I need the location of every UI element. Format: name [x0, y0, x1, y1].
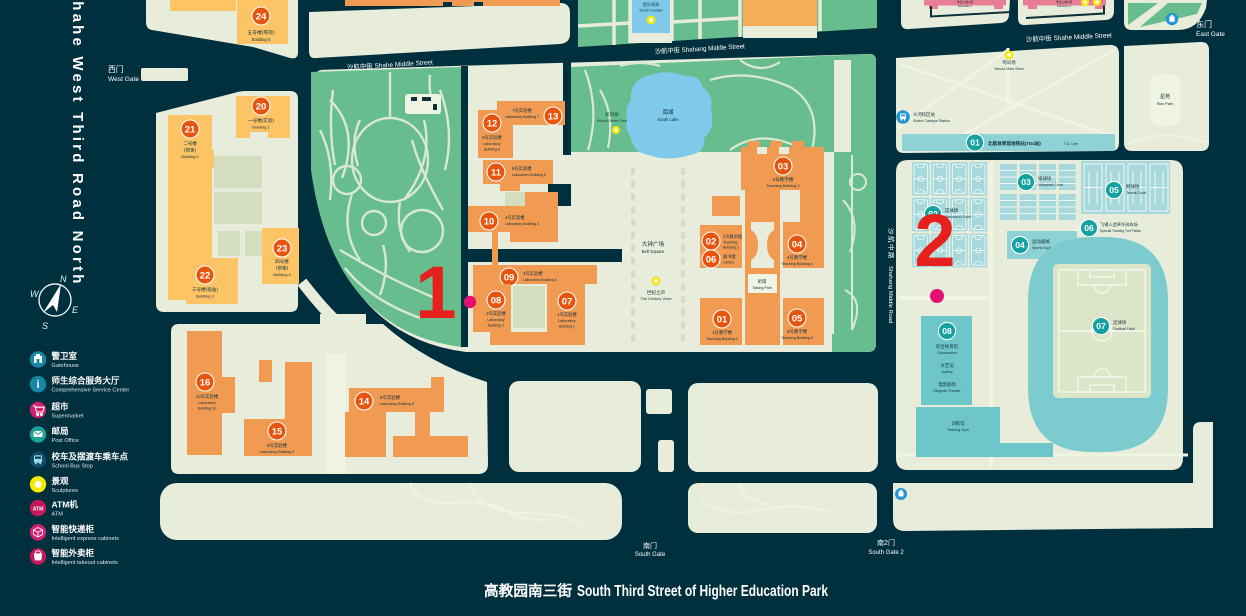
svg-text:Kingman Theater: Kingman Theater [933, 389, 961, 393]
svg-text:学生公寓D座: 学生公寓D座 [1056, 0, 1073, 4]
svg-text:Music Fountain: Music Fountain [640, 9, 663, 13]
svg-text:Laboratory: Laboratory [483, 142, 500, 146]
svg-text:4号实验楼: 4号实验楼 [505, 214, 525, 221]
svg-text:23: 23 [277, 243, 288, 254]
svg-text:Laboratory: Laboratory [487, 318, 504, 322]
svg-text:01: 01 [717, 314, 728, 325]
svg-text:高教园南三街: 高教园南三街 [484, 582, 573, 600]
svg-text:超市: 超市 [51, 402, 70, 412]
svg-text:24: 24 [256, 11, 267, 22]
svg-text:Sculptures: Sculptures [52, 488, 79, 494]
svg-text:2: 2 [914, 199, 955, 282]
svg-text:景观: 景观 [52, 476, 70, 486]
svg-text:Volleyball Court: Volleyball Court [1038, 183, 1063, 187]
svg-text:ATM: ATM [52, 512, 64, 518]
svg-text:16: 16 [200, 377, 211, 388]
svg-text:9号实验楼: 9号实验楼 [267, 442, 288, 449]
svg-text:Building 2: Building 2 [723, 246, 739, 250]
svg-text:i: i [36, 379, 39, 391]
svg-text:1号实验楼: 1号实验楼 [557, 311, 577, 318]
svg-text:South Third Street of Higher E: South Third Street of Higher Education P… [577, 583, 828, 600]
svg-text:西门: 西门 [108, 64, 124, 74]
svg-text:三号楼(宿舍): 三号楼(宿舍) [192, 286, 218, 293]
svg-text:04: 04 [792, 239, 803, 250]
svg-text:Star Park: Star Park [1157, 101, 1174, 106]
svg-text:东门: 东门 [1196, 19, 1212, 29]
svg-text:Tennis Court: Tennis Court [1126, 191, 1146, 195]
svg-text:15: 15 [272, 426, 283, 437]
svg-text:Teaching Building 5: Teaching Building 5 [781, 336, 813, 340]
svg-text:1: 1 [415, 251, 456, 334]
svg-text:10号实验楼: 10号实验楼 [196, 393, 219, 400]
svg-text:Laboratory Building 9: Laboratory Building 9 [260, 450, 294, 454]
svg-text:南湖: 南湖 [663, 108, 674, 116]
svg-text:Bell Square: Bell Square [642, 249, 665, 254]
svg-text:S: S [42, 321, 48, 331]
svg-text:East Gate: East Gate [1196, 31, 1225, 38]
svg-text:14: 14 [359, 396, 370, 407]
svg-text:Laboratory Building 3: Laboratory Building 3 [523, 278, 557, 282]
svg-text:Laboratory: Laboratory [558, 319, 575, 323]
svg-text:T.D. Line: T.D. Line [1064, 142, 1078, 146]
svg-text:5号实验楼: 5号实验楼 [512, 165, 532, 172]
svg-text:四号楼: 四号楼 [275, 258, 289, 265]
svg-text:(宿舍): (宿舍) [276, 265, 289, 272]
svg-text:网球场: 网球场 [1126, 183, 1140, 190]
svg-text:星苑: 星苑 [1160, 93, 1170, 100]
svg-text:Dormitory 3: Dormitory 3 [1057, 4, 1071, 8]
svg-text:08: 08 [491, 295, 502, 306]
svg-text:11: 11 [491, 167, 502, 178]
svg-text:Library: Library [723, 261, 734, 265]
svg-text:Gallery: Gallery [941, 370, 953, 374]
svg-text:排球场: 排球场 [1038, 175, 1052, 182]
svg-text:音乐喷泉: 音乐喷泉 [643, 1, 661, 8]
svg-text:Teaching Building 4: Teaching Building 4 [781, 262, 813, 266]
svg-text:Building 10: Building 10 [198, 407, 216, 411]
svg-text:Building 1: Building 1 [559, 325, 575, 329]
svg-text:7号实验楼: 7号实验楼 [512, 107, 532, 114]
svg-text:智能外卖柜: 智能外卖柜 [51, 548, 95, 558]
svg-text:04: 04 [1015, 240, 1025, 250]
svg-text:01: 01 [970, 138, 980, 148]
svg-text:Post Office: Post Office [52, 438, 79, 444]
svg-text:南门: 南门 [643, 541, 657, 550]
svg-text:Teaching: Teaching [723, 241, 737, 245]
svg-text:邮局: 邮局 [52, 426, 69, 436]
svg-text:一号楼(实验): 一号楼(实验) [248, 117, 274, 124]
svg-text:Intelligent express cabinets: Intelligent express cabinets [52, 536, 120, 542]
svg-text:Shahe Campus Station: Shahe Campus Station [913, 119, 950, 123]
svg-text:南2门: 南2门 [877, 538, 895, 547]
svg-text:Building 6: Building 6 [484, 148, 500, 152]
svg-text:N: N [60, 274, 67, 284]
svg-text:South Gate: South Gate [635, 552, 666, 558]
svg-text:Laboratory Building 5: Laboratory Building 5 [512, 173, 546, 177]
svg-text:校训树: 校训树 [605, 111, 619, 118]
svg-text:图书馆: 图书馆 [723, 253, 736, 260]
svg-text:03: 03 [1021, 177, 1031, 187]
svg-text:Laboratory Building 7: Laboratory Building 7 [505, 115, 539, 119]
svg-text:E: E [72, 305, 79, 315]
svg-text:Shahang Middle Road: Shahang Middle Road [887, 266, 893, 323]
svg-text:Laboratory Building 8: Laboratory Building 8 [380, 402, 414, 406]
svg-text:Building 5: Building 5 [252, 37, 271, 42]
svg-text:The Century Voice: The Century Voice [640, 297, 671, 301]
svg-text:07: 07 [562, 296, 573, 307]
svg-text:Talking Path: Talking Path [752, 286, 772, 290]
svg-text:校车及摆渡车乘车点: 校车及摆渡车乘车点 [52, 451, 129, 461]
svg-text:Training Gym: Training Gym [947, 428, 968, 432]
svg-text:Building 1: Building 1 [252, 125, 270, 130]
svg-text:Supermarket: Supermarket [52, 414, 84, 420]
svg-text:13: 13 [548, 111, 559, 122]
svg-text:School Motto Tree: School Motto Tree [597, 119, 627, 123]
svg-text:足球场: 足球场 [1113, 319, 1127, 326]
svg-text:运动器械: 运动器械 [1032, 238, 1050, 245]
svg-text:South Lake: South Lake [657, 117, 679, 122]
svg-text:20: 20 [256, 101, 267, 112]
svg-text:世纪之声: 世纪之声 [647, 289, 666, 296]
svg-text:Laboratory: Laboratory [198, 401, 215, 405]
svg-text:智能快递柜: 智能快递柜 [51, 524, 95, 534]
svg-text:12: 12 [487, 118, 498, 129]
svg-text:2号实验楼: 2号实验楼 [486, 310, 506, 317]
svg-text:8号实验楼: 8号实验楼 [380, 394, 401, 401]
svg-text:School Moto Store: School Moto Store [994, 67, 1024, 71]
svg-text:师生综合服务大厅: 师生综合服务大厅 [52, 376, 121, 386]
svg-text:听雨: 听雨 [758, 278, 767, 285]
svg-text:05: 05 [1109, 185, 1119, 195]
svg-text:Gatehouse: Gatehouse [52, 363, 79, 369]
svg-text:Football Field: Football Field [1113, 327, 1135, 331]
svg-text:1号教学楼: 1号教学楼 [712, 329, 733, 336]
svg-text:ATM: ATM [33, 506, 44, 512]
svg-text:Teaching Building 1: Teaching Building 1 [706, 337, 738, 341]
svg-text:沙河校区站: 沙河校区站 [913, 111, 936, 118]
svg-text:二号楼: 二号楼 [183, 140, 197, 147]
svg-text:07: 07 [1096, 321, 1106, 331]
svg-text:文艺馆: 文艺馆 [940, 362, 954, 369]
svg-text:05: 05 [792, 313, 803, 324]
svg-text:06: 06 [1084, 223, 1094, 233]
svg-text:北航体育馆地铁站(7D4站): 北航体育馆地铁站(7D4站) [988, 140, 1041, 147]
svg-text:06: 06 [706, 254, 717, 265]
svg-text:大钟广场: 大钟广场 [642, 240, 665, 248]
svg-text:Shahe West Third Road North: Shahe West Third Road North [69, 0, 86, 287]
svg-text:五号楼(琴房): 五号楼(琴房) [247, 29, 275, 36]
svg-text:警卫室: 警卫室 [52, 351, 78, 361]
svg-text:Building 2: Building 2 [488, 324, 504, 328]
svg-text:09: 09 [504, 272, 515, 283]
svg-text:Dormitory 2: Dormitory 2 [958, 4, 972, 8]
svg-text:08: 08 [942, 326, 952, 336]
svg-text:West Gate: West Gate [108, 76, 139, 83]
svg-text:Intelligent takeout cabinets: Intelligent takeout cabinets [52, 560, 118, 566]
svg-text:2号教学楼: 2号教学楼 [723, 233, 742, 240]
svg-text:学生公寓C座: 学生公寓C座 [957, 0, 974, 4]
svg-text:Building 3: Building 3 [196, 294, 214, 299]
svg-text:3号教学楼: 3号教学楼 [773, 176, 794, 183]
svg-text:4号教学楼: 4号教学楼 [787, 254, 808, 261]
svg-text:5号教学楼: 5号教学楼 [787, 328, 808, 335]
svg-text:Building 4: Building 4 [273, 272, 291, 277]
svg-text:训练馆: 训练馆 [951, 420, 965, 427]
svg-text:沙航中路: 沙航中路 [887, 228, 896, 260]
svg-text:03: 03 [778, 161, 789, 172]
svg-text:21: 21 [185, 124, 196, 135]
svg-text:22: 22 [200, 270, 211, 281]
svg-text:Building 2: Building 2 [181, 154, 199, 159]
svg-text:(宿舍): (宿舍) [184, 147, 197, 154]
svg-text:South Gate 2: South Gate 2 [868, 550, 904, 556]
svg-text:Gymnasium: Gymnasium [937, 351, 956, 355]
svg-text:Comprehensive Service Center: Comprehensive Service Center [52, 388, 130, 394]
svg-text:6号实验楼: 6号实验楼 [482, 134, 502, 141]
svg-text:Special Training Turf Fields: Special Training Turf Fields [1100, 229, 1141, 233]
svg-text:驾训场: 驾训场 [1002, 59, 1016, 66]
svg-text:School Bus Stop: School Bus Stop [52, 463, 93, 469]
svg-text:Teaching Building 3: Teaching Building 3 [767, 184, 800, 188]
svg-text:综合体育馆: 综合体育馆 [936, 343, 959, 350]
svg-text:Laboratory Building 4: Laboratory Building 4 [505, 222, 539, 226]
svg-text:3号实验楼: 3号实验楼 [523, 270, 543, 277]
svg-text:飞镖人造草坪训练场: 飞镖人造草坪训练场 [1100, 221, 1138, 228]
svg-text:02: 02 [706, 236, 717, 247]
svg-text:10: 10 [484, 216, 495, 227]
svg-text:ATM机: ATM机 [52, 500, 79, 510]
svg-text:电影剧场: 电影剧场 [938, 381, 956, 388]
